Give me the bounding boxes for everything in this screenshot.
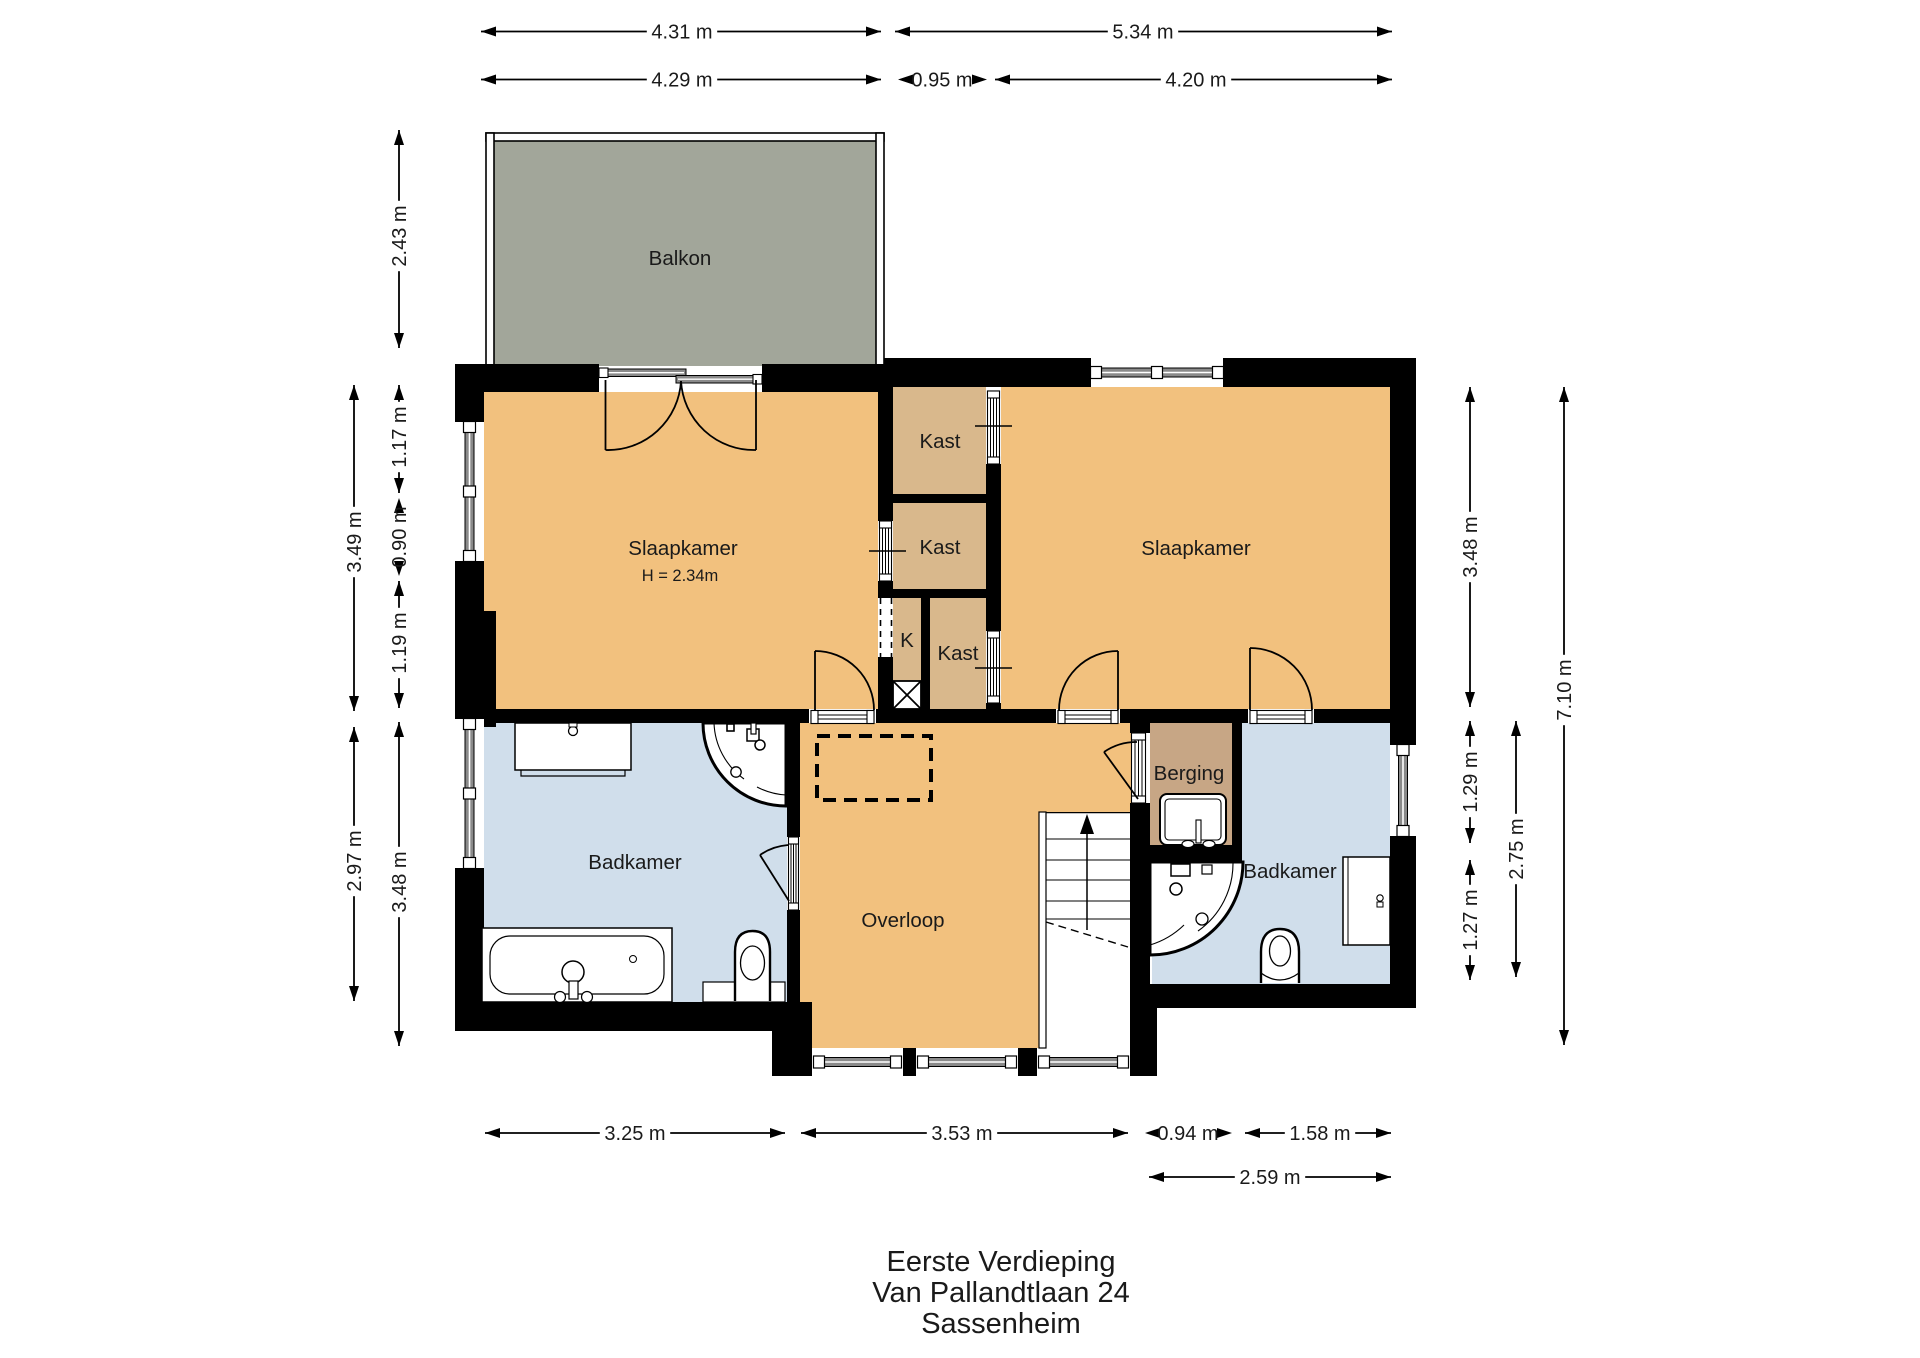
svg-text:1.17 m: 1.17 m bbox=[389, 406, 411, 467]
svg-text:Overloop: Overloop bbox=[861, 909, 944, 932]
svg-text:4.29 m: 4.29 m bbox=[651, 70, 712, 92]
svg-text:3.25 m: 3.25 m bbox=[604, 1123, 665, 1145]
svg-text:0.94 m: 0.94 m bbox=[1157, 1123, 1218, 1145]
svg-text:3.49 m: 3.49 m bbox=[344, 511, 366, 572]
svg-text:5.34 m: 5.34 m bbox=[1112, 22, 1173, 44]
svg-text:1.19 m: 1.19 m bbox=[389, 612, 411, 673]
svg-text:2.75 m: 2.75 m bbox=[1506, 818, 1528, 879]
svg-text:Eerste Verdieping: Eerste Verdieping bbox=[887, 1246, 1116, 1278]
svg-text:Balkon: Balkon bbox=[649, 247, 712, 270]
svg-text:Badkamer: Badkamer bbox=[588, 851, 682, 874]
svg-text:0.95 m: 0.95 m bbox=[911, 70, 972, 92]
svg-text:1.29 m: 1.29 m bbox=[1460, 751, 1482, 812]
svg-text:Kast: Kast bbox=[919, 430, 960, 453]
svg-text:H = 2.34m: H = 2.34m bbox=[642, 567, 719, 585]
svg-text:4.20 m: 4.20 m bbox=[1165, 70, 1226, 92]
svg-text:Slaapkamer: Slaapkamer bbox=[628, 537, 738, 560]
svg-text:0.90 m: 0.90 m bbox=[389, 506, 411, 567]
svg-text:4.31 m: 4.31 m bbox=[651, 22, 712, 44]
svg-text:Slaapkamer: Slaapkamer bbox=[1141, 537, 1251, 560]
svg-text:Van Pallandtlaan 24: Van Pallandtlaan 24 bbox=[872, 1277, 1129, 1309]
svg-text:Kast: Kast bbox=[919, 536, 960, 559]
svg-text:3.48 m: 3.48 m bbox=[1460, 516, 1482, 577]
svg-text:Badkamer: Badkamer bbox=[1243, 860, 1337, 883]
svg-text:7.10 m: 7.10 m bbox=[1554, 659, 1576, 720]
svg-text:1.58 m: 1.58 m bbox=[1289, 1123, 1350, 1145]
svg-text:2.43 m: 2.43 m bbox=[389, 205, 411, 266]
svg-text:2.59 m: 2.59 m bbox=[1239, 1167, 1300, 1189]
svg-text:Berging: Berging bbox=[1154, 762, 1225, 785]
svg-text:2.97 m: 2.97 m bbox=[344, 830, 366, 891]
svg-text:3.53 m: 3.53 m bbox=[931, 1123, 992, 1145]
svg-text:Sassenheim: Sassenheim bbox=[921, 1308, 1081, 1340]
svg-text:3.48 m: 3.48 m bbox=[389, 851, 411, 912]
svg-text:1.27 m: 1.27 m bbox=[1460, 889, 1482, 950]
svg-text:Kast: Kast bbox=[937, 642, 978, 665]
svg-text:K: K bbox=[900, 629, 914, 652]
